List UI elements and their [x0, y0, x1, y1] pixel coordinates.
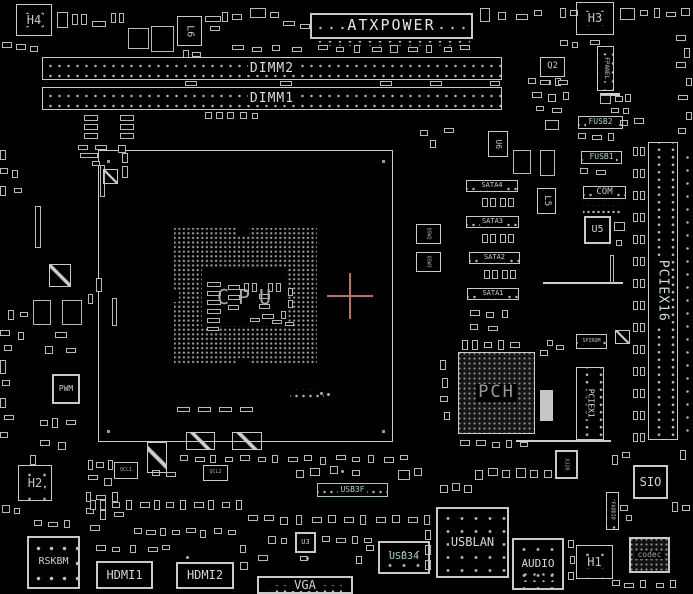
passive-component	[592, 135, 602, 140]
passive-component	[280, 81, 292, 86]
passive-component	[516, 468, 526, 478]
passive-component	[678, 128, 686, 134]
sata4-label: SATA4	[479, 182, 504, 189]
passive-component	[57, 12, 68, 28]
passive-component	[96, 545, 106, 551]
passive-component	[686, 112, 692, 120]
usblan-label: USBLAN	[449, 536, 496, 549]
qcl1-component[interactable]: QCL1	[114, 462, 138, 479]
passive-component	[624, 583, 634, 588]
passive-component	[486, 312, 494, 318]
passive-component	[336, 455, 346, 460]
passive-component	[336, 538, 346, 543]
passive-component	[640, 10, 648, 16]
audio-component[interactable]: AUDIO	[512, 538, 564, 590]
passive-component	[408, 517, 418, 523]
passive-component	[80, 153, 98, 158]
passive-component	[100, 500, 106, 510]
dimm2-label: DIMM2	[248, 62, 296, 76]
passive-component	[508, 198, 514, 207]
passive-component	[336, 47, 344, 52]
sio-label: SIO	[638, 476, 664, 489]
passive-component	[227, 112, 234, 119]
passive-component	[360, 515, 366, 525]
h4-label: H4	[25, 14, 43, 27]
passive-component	[482, 198, 488, 207]
passive-component	[442, 378, 448, 388]
passive-component	[0, 360, 6, 374]
passive-component	[344, 517, 354, 523]
passive-component	[558, 80, 568, 85]
passive-component	[268, 536, 276, 544]
passive-component	[472, 340, 478, 350]
passive-component	[354, 45, 360, 53]
passive-component	[222, 502, 230, 508]
passive-component	[112, 502, 120, 508]
passive-component	[12, 170, 18, 178]
passive-component	[634, 118, 644, 124]
passive-component	[0, 398, 6, 408]
passive-component	[90, 500, 96, 510]
pch-component[interactable]: PCH	[458, 352, 535, 434]
passive-component	[444, 412, 450, 420]
passive-component	[530, 470, 538, 478]
passive-component	[476, 440, 486, 446]
passive-component	[545, 120, 559, 130]
audio-label: AUDIO	[519, 558, 556, 570]
passive-component	[240, 455, 250, 461]
passive-component	[620, 505, 628, 511]
q2-label: Q2	[545, 62, 560, 71]
passive-component	[656, 583, 664, 588]
passive-component	[195, 457, 205, 462]
diagonal-component	[103, 169, 118, 184]
passive-component	[615, 96, 623, 102]
passive-component	[420, 130, 428, 136]
passive-component	[544, 470, 552, 478]
cpu-label: CPU	[202, 268, 286, 326]
fpanel-label: FPANEL	[602, 56, 608, 82]
passive-component	[240, 407, 253, 412]
passive-component	[81, 14, 87, 25]
passive-component	[232, 45, 244, 50]
passive-component	[264, 515, 274, 521]
passive-component	[292, 47, 302, 52]
passive-component	[288, 457, 298, 462]
passive-component	[172, 530, 180, 535]
passive-component	[205, 16, 221, 22]
passive-component	[366, 545, 374, 551]
passive-component	[312, 517, 322, 523]
passive-component	[516, 14, 528, 20]
passive-component	[258, 555, 268, 561]
passive-component	[0, 168, 8, 174]
vga-component[interactable]: VGA	[257, 576, 353, 594]
socket-notch	[237, 226, 249, 235]
passive-component	[48, 522, 58, 527]
passive-component	[92, 161, 100, 166]
spirom-component[interactable]: SPIROM	[576, 334, 607, 349]
passive-component	[122, 153, 128, 163]
cpu-center-passive	[207, 327, 219, 331]
sata3-component[interactable]: SATA3	[466, 216, 519, 228]
passive-component	[177, 407, 190, 412]
usb34-component[interactable]: USB34	[378, 541, 430, 574]
diagonal-component	[186, 432, 215, 450]
passive-component	[678, 95, 688, 100]
fusb1-label: FUSB1	[587, 153, 615, 161]
passive-component	[2, 380, 10, 386]
passive-component	[408, 47, 418, 52]
sata3-label: SATA3	[480, 218, 505, 225]
x32k-component[interactable]: X32K	[555, 450, 578, 479]
u6-label: U6	[494, 137, 502, 151]
test-point	[341, 470, 344, 473]
passive-component	[180, 455, 188, 461]
passive-component	[475, 470, 483, 480]
passive-component	[540, 350, 548, 356]
q2-component[interactable]: Q2	[540, 57, 565, 77]
passive-component	[376, 517, 386, 523]
socket-corner-dot	[382, 160, 385, 163]
passive-component	[210, 26, 220, 31]
passive-component	[14, 508, 20, 514]
pch-label: PCH	[476, 384, 517, 402]
qsw2-component[interactable]: QSW2	[416, 224, 441, 244]
passive-component	[122, 166, 128, 178]
passive-component	[440, 485, 448, 493]
passive-component	[488, 468, 498, 476]
pad-strip	[290, 389, 324, 398]
passive-component	[440, 396, 448, 402]
passive-component	[352, 470, 360, 476]
hdmi1-component[interactable]: HDMI1	[96, 561, 153, 589]
passive-component	[126, 500, 132, 510]
passive-component	[625, 94, 631, 102]
passive-component	[356, 556, 362, 564]
qcl2-label: QCL2	[207, 470, 223, 475]
u6-component[interactable]: U6	[488, 131, 508, 157]
passive-component	[684, 48, 690, 58]
passive-component	[508, 234, 514, 243]
passive-component	[611, 108, 619, 113]
passive-component	[205, 112, 212, 119]
diagonal-component	[232, 432, 262, 450]
passive-component	[686, 78, 692, 86]
passive-component	[252, 113, 258, 119]
passive-component	[425, 530, 431, 540]
passive-component	[676, 35, 686, 41]
rskbm-component[interactable]: RSKBM	[27, 536, 80, 589]
passive-component	[590, 40, 600, 45]
passive-component	[118, 145, 126, 153]
diagonal-component	[49, 264, 71, 287]
socket-notch	[172, 290, 179, 302]
passive-component	[78, 145, 88, 150]
passive-component	[88, 294, 93, 304]
passive-component	[194, 502, 204, 508]
passive-component	[390, 45, 398, 53]
passive-component	[330, 466, 338, 474]
passive-component	[612, 580, 620, 586]
passive-component	[4, 345, 12, 351]
l5-component[interactable]: L5	[537, 188, 556, 214]
passive-component	[90, 525, 100, 531]
passive-component	[488, 326, 498, 331]
pad-pair	[633, 147, 645, 156]
passive-component	[180, 500, 186, 510]
passive-component	[464, 485, 472, 493]
passive-component	[92, 21, 106, 27]
passive-component	[166, 472, 176, 477]
passive-component	[520, 442, 528, 447]
passive-component	[96, 462, 104, 468]
passive-component	[120, 124, 134, 130]
test-point	[320, 392, 323, 395]
passive-component	[622, 452, 630, 458]
qcl2-component[interactable]: QCL2	[203, 465, 228, 481]
passive-component	[216, 112, 223, 119]
passive-component	[55, 332, 67, 338]
passive-component	[151, 26, 174, 52]
passive-component	[148, 547, 158, 552]
passive-component	[30, 46, 38, 52]
passive-component	[490, 198, 496, 207]
l6-label: L6	[184, 23, 195, 39]
usblan-component[interactable]: USBLAN	[436, 507, 509, 578]
passive-component	[160, 528, 166, 536]
passive-component	[623, 108, 629, 114]
passive-component	[52, 418, 58, 428]
passive-component	[281, 538, 287, 544]
passive-component	[392, 515, 400, 523]
qsw2-label: QSW2	[426, 226, 431, 242]
passive-component	[424, 515, 430, 525]
sata2-component[interactable]: SATA2	[469, 252, 520, 264]
pad-pair	[633, 279, 645, 288]
passive-component	[352, 457, 360, 462]
passive-component	[320, 457, 326, 465]
passive-component	[310, 468, 320, 476]
passive-component	[672, 502, 678, 512]
passive-component	[670, 580, 676, 588]
cpu-center-passive	[288, 300, 293, 308]
sio-component[interactable]: SIO	[633, 465, 668, 499]
fusb2-component[interactable]: FUSB2	[578, 116, 623, 129]
faudio-component[interactable]: FAUDIO	[606, 492, 619, 530]
passive-component	[84, 133, 98, 139]
codec-component[interactable]: codec	[629, 537, 670, 573]
u5-label: U5	[589, 225, 605, 236]
usb34-label: USB34	[387, 552, 421, 563]
diagonal-component	[615, 330, 630, 344]
passive-component	[654, 8, 660, 18]
passive-component	[208, 500, 214, 510]
passive-component	[498, 340, 504, 350]
passive-component	[578, 133, 586, 139]
passive-component	[560, 40, 568, 46]
cpu-center-passive	[285, 322, 294, 326]
passive-component	[328, 515, 336, 523]
com-component[interactable]: COM	[583, 186, 626, 199]
passive-component	[66, 420, 76, 425]
h2-label: H2	[26, 477, 44, 490]
passive-component	[610, 255, 614, 283]
passive-component	[616, 240, 622, 246]
pad-strip	[312, 41, 470, 46]
passive-component	[4, 415, 14, 420]
passive-component	[16, 44, 26, 50]
passive-component	[596, 170, 606, 175]
passive-component	[186, 528, 196, 533]
h3-component[interactable]: H3	[576, 2, 614, 35]
pad-pair	[633, 213, 645, 222]
pwm-label: PWM	[57, 385, 75, 393]
passive-component	[384, 457, 394, 463]
passive-component	[40, 420, 48, 426]
usb3f-component[interactable]: USB3F	[317, 483, 388, 497]
passive-component	[222, 12, 228, 22]
u5-component[interactable]: U5	[584, 216, 611, 244]
u3-label: U3	[299, 539, 311, 546]
passive-component	[460, 440, 470, 446]
passive-component	[614, 222, 625, 231]
socket-corner-dot	[107, 430, 110, 433]
passive-component	[198, 407, 211, 412]
passive-component	[200, 530, 206, 538]
passive-component	[272, 455, 278, 463]
passive-component	[612, 455, 618, 465]
passive-component	[0, 150, 6, 160]
passive-component	[640, 580, 646, 588]
passive-component	[108, 460, 113, 470]
passive-component	[0, 330, 10, 336]
passive-component	[666, 12, 676, 17]
passive-component	[600, 95, 611, 104]
u3-component[interactable]: U3	[295, 532, 316, 553]
passive-component	[258, 457, 266, 462]
cpu-center-passive	[288, 288, 293, 296]
test-point	[186, 556, 189, 559]
passive-component	[270, 12, 279, 18]
passive-component	[484, 270, 490, 279]
passive-component	[444, 128, 454, 133]
passive-component	[40, 440, 50, 446]
passive-component	[280, 517, 288, 525]
passive-component	[134, 528, 142, 534]
passive-component	[214, 528, 222, 534]
spirom-label: SPIROM	[580, 339, 602, 344]
passive-component	[548, 94, 556, 102]
passive-component	[580, 168, 588, 174]
pciex1-component[interactable]: PCIEX1	[576, 367, 604, 440]
passive-component	[536, 106, 544, 111]
passive-component	[568, 540, 574, 548]
dimm1-component[interactable]: DIMM1	[42, 87, 502, 110]
sata1-component[interactable]: SATA1	[467, 288, 519, 300]
passive-component	[380, 81, 392, 86]
passive-component	[0, 186, 6, 196]
passive-component	[64, 520, 70, 528]
filled-pad	[540, 390, 553, 421]
passive-component	[482, 234, 488, 243]
passive-component	[426, 45, 432, 53]
passive-component	[532, 92, 542, 98]
pciex16-component[interactable]: PCIEX16	[648, 142, 678, 440]
passive-component	[502, 470, 510, 478]
vga-label: VGA	[292, 579, 318, 592]
atxpower-component[interactable]: ATXPOWER	[310, 13, 473, 39]
passive-component	[513, 150, 531, 174]
l6-component[interactable]: L6	[177, 16, 202, 46]
passive-component	[300, 24, 310, 29]
passive-component	[452, 483, 460, 491]
passive-component	[608, 133, 614, 141]
qsw3-component[interactable]: QSW3	[416, 252, 441, 272]
passive-component	[364, 538, 372, 543]
passive-component	[470, 324, 478, 330]
fusb1-component[interactable]: FUSB1	[581, 151, 622, 164]
crosshair-marker	[349, 273, 351, 319]
passive-component	[540, 150, 555, 176]
h2-component[interactable]: H2	[18, 465, 52, 501]
h1-component[interactable]: H1	[576, 545, 613, 579]
passive-component	[570, 556, 575, 564]
fusb2-label: FUSB2	[586, 118, 614, 126]
passive-component	[372, 47, 382, 52]
boardview-canvas: H4L6ATXPOWERH3DIMM2DIMM1Q2FPANELFUSB2FUS…	[0, 0, 693, 594]
usb3f-label: USB3F	[338, 486, 366, 494]
passive-component	[272, 45, 280, 51]
fpanel-component[interactable]: FPANEL	[597, 46, 614, 91]
diagonal-component	[147, 442, 167, 473]
pad-pair	[633, 367, 645, 376]
h4-component[interactable]: H4	[16, 4, 52, 36]
passive-component	[252, 47, 262, 52]
passive-component	[112, 547, 120, 552]
passive-component	[111, 13, 116, 23]
h1-label: H1	[585, 556, 603, 569]
passive-component	[240, 545, 246, 553]
passive-component	[2, 42, 12, 48]
passive-component	[112, 298, 117, 326]
pad-pair	[633, 389, 645, 398]
sata4-component[interactable]: SATA4	[466, 180, 518, 192]
passive-component	[62, 300, 82, 325]
passive-component	[547, 340, 553, 346]
qsw3-label: QSW3	[426, 254, 431, 270]
pwm-component[interactable]: PWM	[52, 374, 80, 404]
passive-component	[430, 140, 436, 148]
passive-component	[470, 310, 480, 316]
passive-component	[480, 8, 490, 22]
passive-component	[490, 81, 500, 86]
passive-component	[240, 562, 248, 570]
passive-component	[130, 545, 136, 553]
passive-component	[676, 62, 686, 68]
passive-component	[681, 8, 690, 16]
hdmi2-component[interactable]: HDMI2	[176, 562, 234, 589]
passive-component	[210, 455, 216, 463]
passive-component	[14, 188, 22, 193]
qcl1-label: QCL1	[118, 468, 134, 473]
passive-component	[2, 505, 10, 513]
l5-label: L5	[542, 194, 551, 209]
passive-component	[8, 310, 14, 320]
dimm2-component[interactable]: DIMM2	[42, 57, 502, 80]
passive-component	[682, 505, 690, 511]
sata1-label: SATA1	[480, 290, 505, 297]
